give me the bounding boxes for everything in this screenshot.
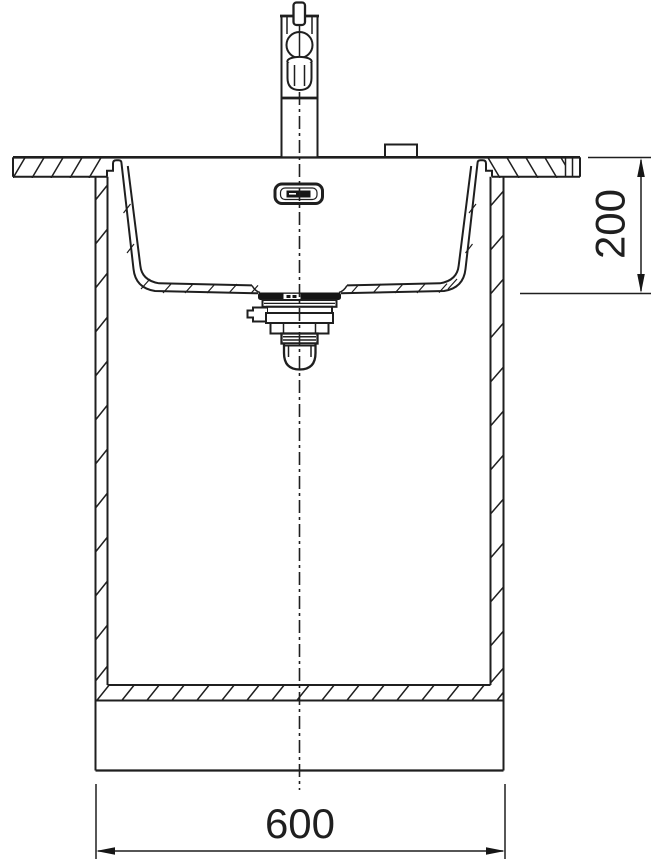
tap-spout <box>288 63 312 90</box>
countertop-hatch-right <box>487 156 573 178</box>
strainer-slot-1 <box>287 295 291 298</box>
left-panel-hatch <box>96 185 108 681</box>
right-panel-hatch <box>491 191 504 683</box>
overflow-slot-highlight <box>289 193 296 195</box>
dimension-depth: 200 <box>520 158 651 294</box>
tap-lever <box>294 3 306 26</box>
width-dimension-label: 600 <box>265 800 335 847</box>
tap-hole-cover <box>385 145 417 158</box>
bowl-right-inner-wall <box>347 166 471 285</box>
strainer-slot-plate <box>284 294 301 299</box>
depth-dimension-label: 200 <box>587 189 634 259</box>
dimension-width: 600 <box>96 784 505 859</box>
bowl-left-inner-wall <box>128 166 252 285</box>
drain-assembly <box>248 286 348 370</box>
strainer-slot-2 <box>293 295 297 298</box>
depth-arrow-down <box>637 274 645 293</box>
sink-technical-drawing: 200 600 <box>0 0 668 860</box>
waste-nut <box>271 323 329 334</box>
shelf-hatch <box>96 684 510 702</box>
overflow-connector <box>248 308 268 322</box>
depth-arrow-up <box>637 158 645 177</box>
cabinet <box>96 177 511 771</box>
sink-bowl <box>107 160 492 293</box>
width-arrow-right <box>486 847 505 855</box>
drawing-canvas: 200 600 <box>0 0 668 860</box>
countertop <box>13 156 580 178</box>
width-arrow-left <box>96 847 115 855</box>
countertop-hatch-left <box>13 156 121 178</box>
